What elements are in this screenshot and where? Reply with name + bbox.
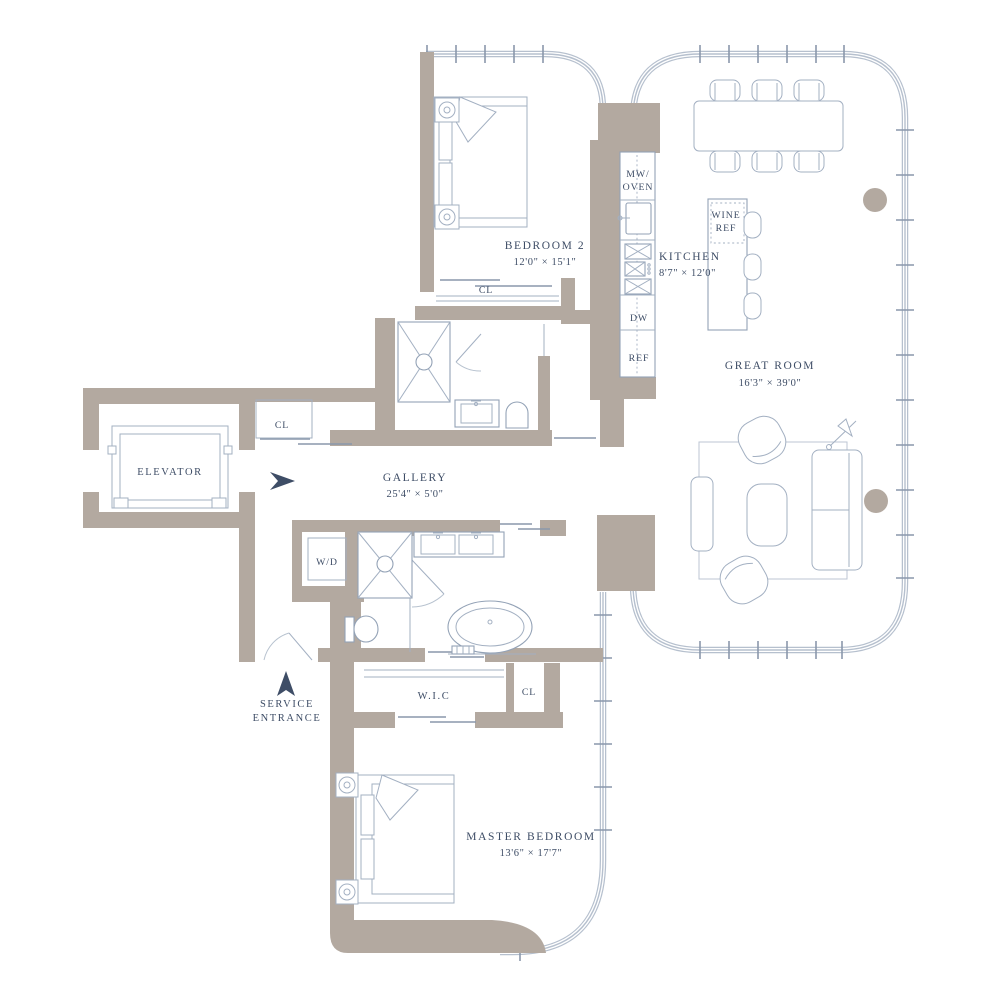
gallery-dims: 25'4" × 5'0" <box>387 489 444 500</box>
microwave-oven-label: MW/ <box>626 169 649 180</box>
wic-rods <box>364 670 504 677</box>
bedroom2-dims: 12'0" × 15'1" <box>514 257 577 268</box>
kitchen-dims: 8'7" × 12'0" <box>659 268 716 279</box>
master-bath-door <box>412 560 444 607</box>
great-room-dims: 16'3" × 39'0" <box>739 378 802 389</box>
sofa-icon <box>812 450 862 570</box>
armchair-icon <box>732 410 792 470</box>
nightstand-icon <box>435 98 459 122</box>
service-door <box>264 633 312 660</box>
dining-table-icon <box>694 101 843 151</box>
bedroom2-closet-label: CL <box>479 285 493 296</box>
great-room-label: GREAT ROOM <box>725 360 815 372</box>
floor-plan: BEDROOM 2 12'0" × 15'1" CL KITCHEN 8'7" … <box>0 0 1000 1000</box>
master-closet-label: CL <box>522 687 536 698</box>
master-bath-fixtures <box>345 532 536 654</box>
gallery-label: GALLERY <box>383 472 447 484</box>
bathtub-icon <box>448 601 536 654</box>
master-bedroom-label: MASTER BEDROOM <box>466 831 595 843</box>
stool-icon <box>744 212 761 238</box>
nightstand-icon <box>336 773 358 797</box>
column <box>863 188 887 212</box>
shower-icon <box>358 532 412 598</box>
floor-plan-drawing: BEDROOM 2 12'0" × 15'1" CL KITCHEN 8'7" … <box>0 0 1000 1000</box>
double-vanity-icon <box>414 532 504 557</box>
gallery-entry-arrow-icon <box>270 472 295 490</box>
master-bedroom-dims: 13'6" × 17'7" <box>500 848 563 859</box>
toilet-icon <box>345 616 378 642</box>
gallery-closet-box <box>256 400 312 438</box>
shower-icon <box>398 322 450 402</box>
elevator-label: ELEVATOR <box>137 467 203 478</box>
wine-ref-label: WINE <box>711 210 740 221</box>
console-icon <box>691 477 713 551</box>
microwave-oven-label: OVEN <box>623 182 654 193</box>
service-entrance-label: SERVICE <box>260 699 314 710</box>
wine-ref-label: REF <box>716 223 737 234</box>
gallery-closet-label: CL <box>275 420 289 431</box>
vanity-sink-icon <box>455 400 499 427</box>
bathroom2-fixtures <box>398 322 528 428</box>
bath2-door <box>456 334 481 371</box>
toilet-icon <box>506 402 528 428</box>
dining-set <box>694 80 843 172</box>
dishwasher-label: DW <box>630 313 648 324</box>
coffee-table-icon <box>747 484 787 546</box>
column <box>864 489 888 513</box>
bedroom2-furniture <box>434 97 527 229</box>
wic-label: W.I.C <box>418 691 451 702</box>
floor-lamp-icon <box>827 419 857 450</box>
bedroom2-closet <box>436 296 559 301</box>
living-group <box>691 410 862 610</box>
service-entrance-arrow-icon <box>277 671 295 696</box>
nightstand-icon <box>435 205 459 229</box>
bedroom2-label: BEDROOM 2 <box>505 240 586 252</box>
washer-dryer-label: W/D <box>316 557 338 568</box>
armchair-icon <box>714 550 774 610</box>
service-entrance-label: ENTRANCE <box>253 713 322 724</box>
stool-icon <box>744 293 761 319</box>
kitchen-label: KITCHEN <box>659 251 721 263</box>
stool-icon <box>744 254 761 280</box>
refrigerator-label: REF <box>629 353 650 364</box>
nightstand-icon <box>336 880 358 904</box>
